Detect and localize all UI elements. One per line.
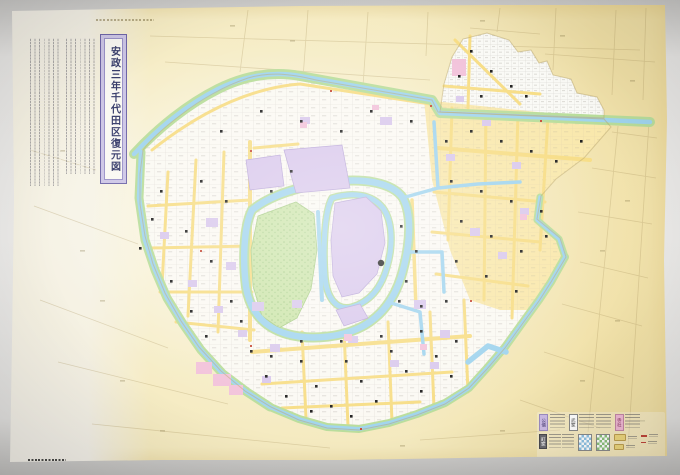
legend-label: 寺社 [617, 418, 622, 427]
castle-keep-marker [378, 260, 384, 266]
road-item [614, 434, 637, 441]
text-column-group [30, 38, 61, 186]
map-title-cartouche: 安政三年千代田区復元図 [100, 34, 127, 184]
temple-shrine-swatch: 寺社 [615, 414, 624, 431]
legend-row-1: 公儀 武家 寺社 [539, 414, 663, 431]
bridge-gate-mark [641, 442, 646, 444]
legend-label: 武家 [571, 418, 576, 427]
government-land-swatch: 公儀 [539, 414, 548, 431]
green-bank-swatch [596, 434, 610, 451]
map-title-frame: 安政三年千代田区復元図 [104, 38, 123, 180]
legend-text-lines [562, 434, 574, 448]
legend-text-lines [579, 414, 594, 430]
map-title: 安政三年千代田区復元図 [109, 46, 119, 173]
legend-text-lines [649, 434, 658, 438]
legend-label: 町家 [541, 437, 546, 446]
top-margin-caption [96, 19, 154, 21]
legend-entry-samurai: 武家 [569, 414, 611, 431]
legend-entry-temple: 寺社 [615, 414, 641, 431]
legend-text-lines [596, 414, 611, 430]
text-column-group [66, 38, 97, 174]
map-legend: 公儀 武家 寺社 町家 [537, 412, 665, 460]
legend-entry-townsfolk: 町家 [539, 434, 574, 449]
road-item [614, 444, 637, 450]
legend-row-2: 町家 [539, 434, 663, 451]
legend-text-lines [625, 414, 640, 430]
photo-of-map: { "map": { "title": "安政三年千代田区復元図", "titl… [0, 0, 680, 475]
legend-text-lines [550, 414, 565, 430]
legend-text-lines [626, 445, 635, 449]
moat-river-swatch [578, 434, 592, 451]
legend-text-lines [549, 434, 561, 448]
bridge-gate-mark [641, 435, 647, 437]
legend-text-lines [648, 441, 657, 445]
legend-text-lines [628, 436, 637, 440]
townsfolk-land-swatch: 町家 [539, 434, 547, 449]
gate-item [641, 441, 658, 445]
samurai-land-swatch: 武家 [569, 414, 578, 431]
explanatory-text-block [30, 38, 96, 186]
legend-entry-government: 公儀 [539, 414, 565, 431]
gate-item [641, 434, 658, 438]
legend-gate-items [641, 434, 658, 445]
road-swatch [614, 444, 624, 450]
credit-line [28, 459, 66, 461]
legend-label: 公儀 [541, 418, 546, 427]
legend-road-items [614, 434, 637, 450]
road-swatch [614, 434, 626, 441]
map-sheet-paper: 安政三年千代田区復元図 公儀 武家 寺社 町家 [0, 0, 680, 475]
